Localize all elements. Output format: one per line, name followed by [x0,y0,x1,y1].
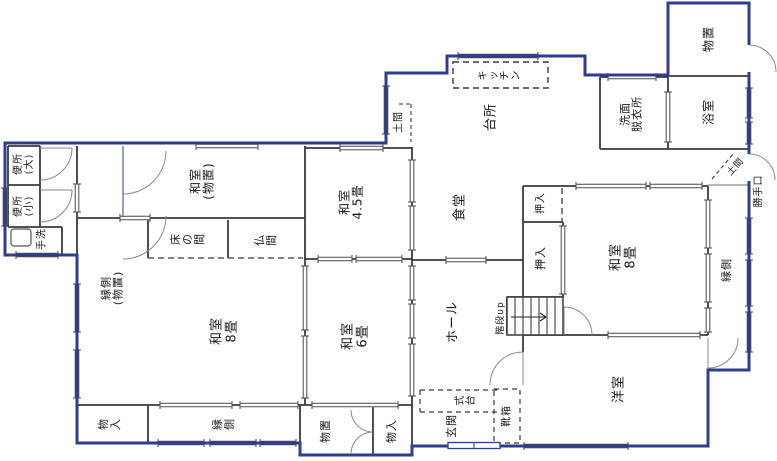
room-label-benjo-dai: 便所 (大) [13,153,35,175]
room-label-kaidan-up: 階段up [496,301,506,334]
room-label-doma-left: 土間 [393,111,404,133]
room-label-washitsu-monooki: 和室 (物置) [190,162,217,199]
room-label-washitsu-8-left: 和室 8畳 [210,317,239,345]
room-label-monooki-top: 物置 [702,26,715,52]
room-labels: 便所 (大)便所 (小)手洗和室 (物置)和室 4.5畳床の間仏間縁側 (物置)… [0,0,777,461]
room-label-engawa-monooki: 縁側 (物置) [101,271,126,306]
room-label-doma-right: 土間 [726,156,747,178]
room-label-oshiire-upper: 押入 [535,192,546,214]
room-label-washitsu-8-right: 和室 8畳 [609,243,638,271]
room-label-benjo-sho: 便所 (小) [13,195,35,217]
room-label-shikidai: 式台 [455,394,477,405]
room-label-engawa-right: 縁側 [721,258,733,282]
room-label-katteguchi: 勝手口 [753,175,764,208]
room-label-monoire-bl: 物入 [98,418,122,430]
room-label-washitsu-45: 和室 4.5畳 [339,184,366,219]
room-label-tearai: 手洗 [36,228,47,250]
room-label-daidokoro: 台所 [485,103,500,131]
room-label-shokudo: 食堂 [454,193,469,221]
room-label-engawa-bottom: 縁側 [212,418,236,430]
room-label-kitchen: キッチン [478,69,522,80]
floor-plan: 便所 (大)便所 (小)手洗和室 (物置)和室 4.5畳床の間仏間縁側 (物置)… [0,0,777,461]
room-label-hall: ホール [447,301,462,343]
room-label-monoire-br: 物入 [386,419,398,443]
room-label-oshiire-lower: 押入 [535,246,547,270]
room-label-senmen-datsuiijo: 洗面 脱衣所 [620,96,645,132]
room-label-yokushitsu: 浴室 [702,99,715,125]
room-label-butsuma: 仏間 [254,234,278,246]
room-label-kutsubako: 靴箱 [501,405,512,427]
room-label-tokonoma: 床の間 [170,233,206,245]
room-label-washitsu-6: 和室 6畳 [341,322,370,350]
room-label-monooki-bottom: 物置 [320,419,332,443]
room-label-yoshitsu: 洋室 [613,375,628,403]
room-label-genkan: 玄関 [446,414,458,438]
